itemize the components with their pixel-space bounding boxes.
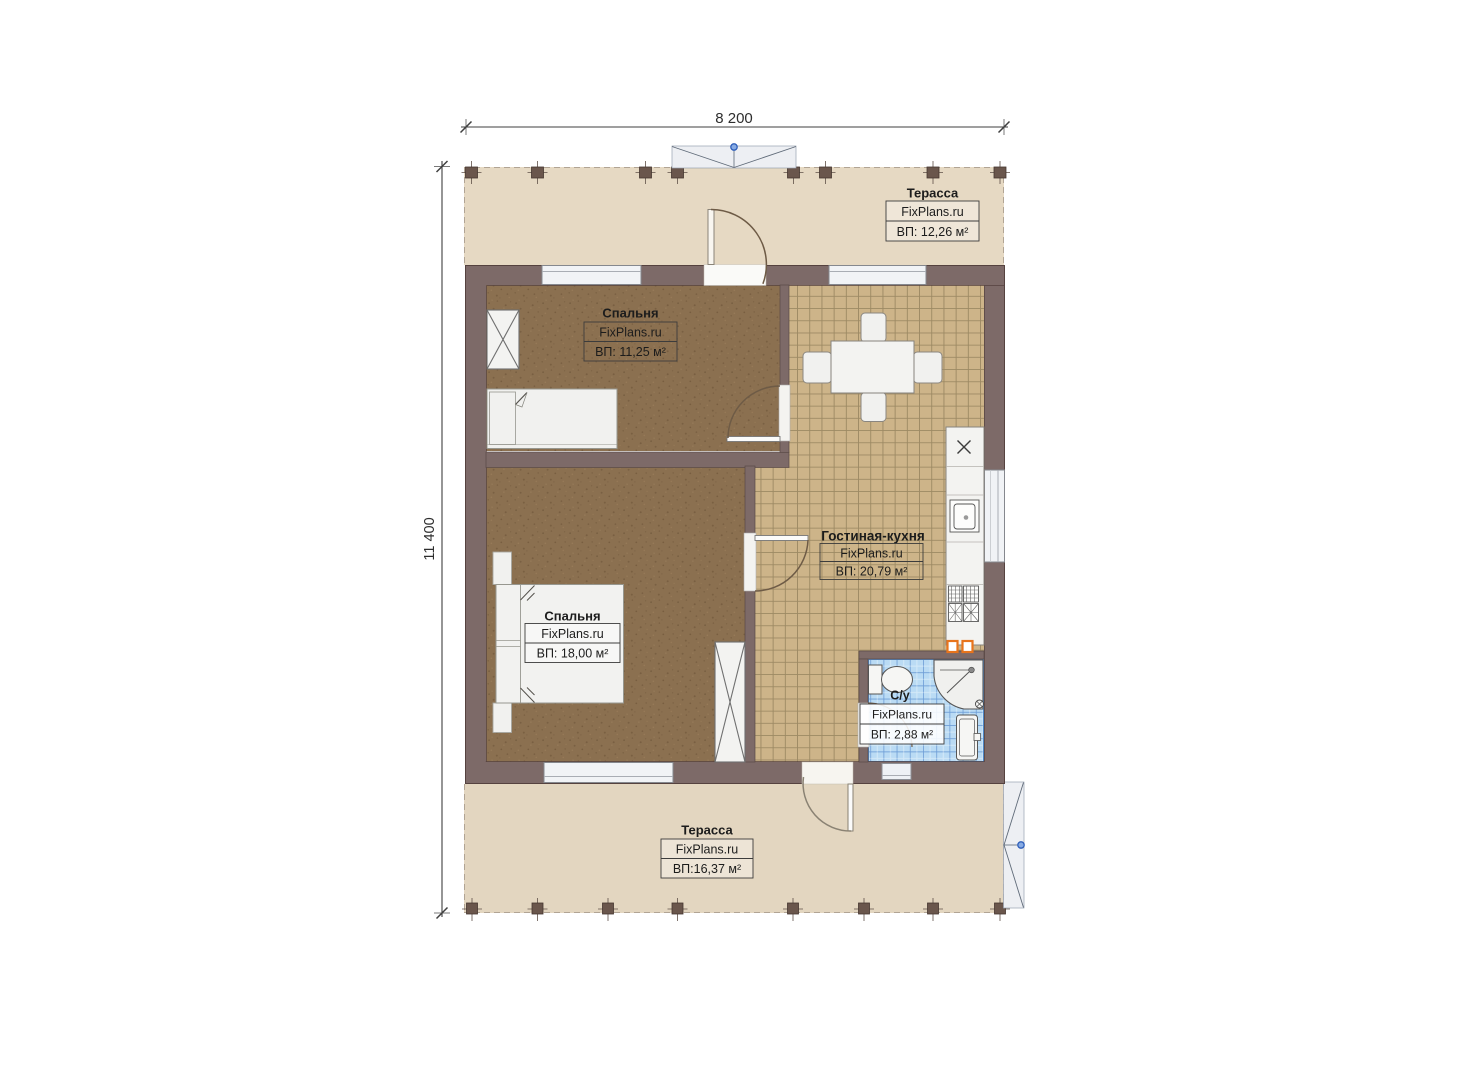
svg-text:ВП: 18,00 м²: ВП: 18,00 м² <box>537 647 609 661</box>
svg-text:FixPlans.ru: FixPlans.ru <box>541 627 604 641</box>
svg-text:FixPlans.ru: FixPlans.ru <box>840 547 903 561</box>
svg-text:FixPlans.ru: FixPlans.ru <box>901 205 964 219</box>
svg-text:Терасса: Терасса <box>907 186 959 201</box>
svg-text:FixPlans.ru: FixPlans.ru <box>599 326 662 340</box>
svg-text:С/у: С/у <box>890 689 910 703</box>
svg-text:ВП:16,37 м²: ВП:16,37 м² <box>673 862 741 876</box>
svg-text:ВП: 2,88 м²: ВП: 2,88 м² <box>871 728 933 742</box>
svg-text:Гостиная-кухня: Гостиная-кухня <box>821 529 924 544</box>
svg-text:FixPlans.ru: FixPlans.ru <box>676 843 739 857</box>
svg-text:ВП: 12,26 м²: ВП: 12,26 м² <box>897 225 969 239</box>
svg-text:11 400: 11 400 <box>422 517 438 560</box>
svg-text:FixPlans.ru: FixPlans.ru <box>872 708 932 722</box>
svg-text:8 200: 8 200 <box>715 110 753 127</box>
svg-text:ВП: 11,25 м²: ВП: 11,25 м² <box>595 345 666 359</box>
svg-text:ВП: 20,79 м²: ВП: 20,79 м² <box>836 565 908 579</box>
svg-text:Терасса: Терасса <box>681 823 733 838</box>
svg-text:Спальня: Спальня <box>544 609 600 624</box>
svg-text:Спальня: Спальня <box>602 306 658 321</box>
